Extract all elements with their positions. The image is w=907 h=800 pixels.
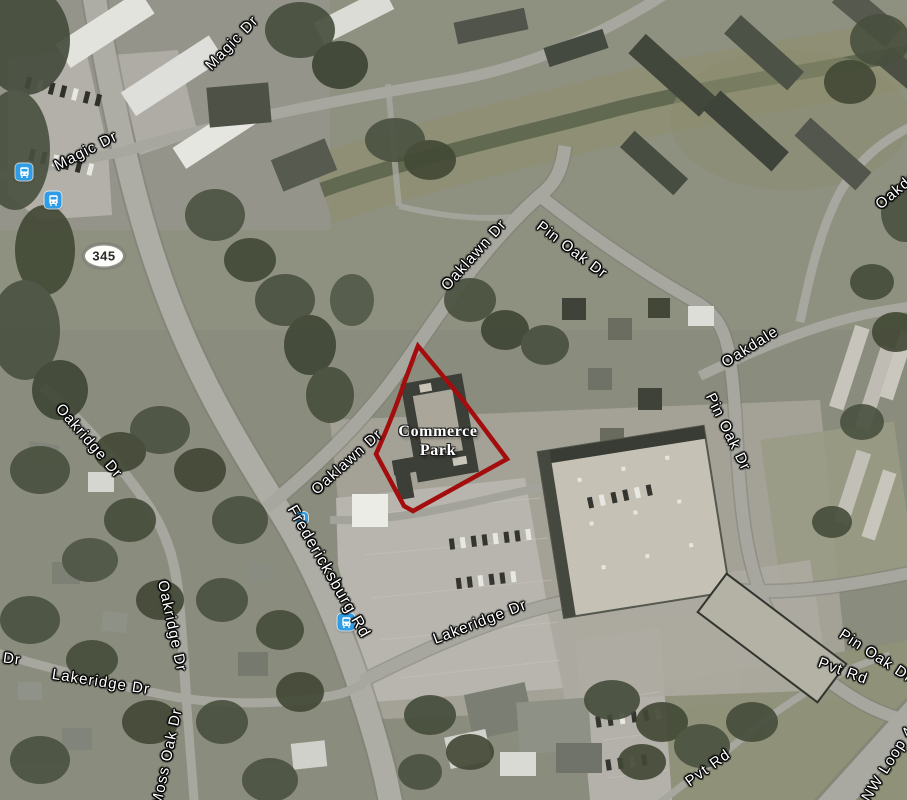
map-canvas[interactable]: Commerce Park Magic DrMagic DrOaklawn Dr…	[0, 0, 907, 800]
bus-stop-icon[interactable]	[16, 164, 33, 181]
bus-glyph	[46, 193, 60, 207]
bus-stop-icon[interactable]	[338, 614, 355, 631]
bus-glyph	[17, 165, 31, 179]
satellite-imagery	[0, 0, 907, 800]
bus-stop-icon[interactable]	[45, 192, 62, 209]
bus-stop-icon[interactable]	[296, 512, 308, 524]
bus-glyph	[297, 513, 307, 523]
route-badge-345: 345	[83, 244, 125, 269]
bus-glyph	[339, 615, 353, 629]
